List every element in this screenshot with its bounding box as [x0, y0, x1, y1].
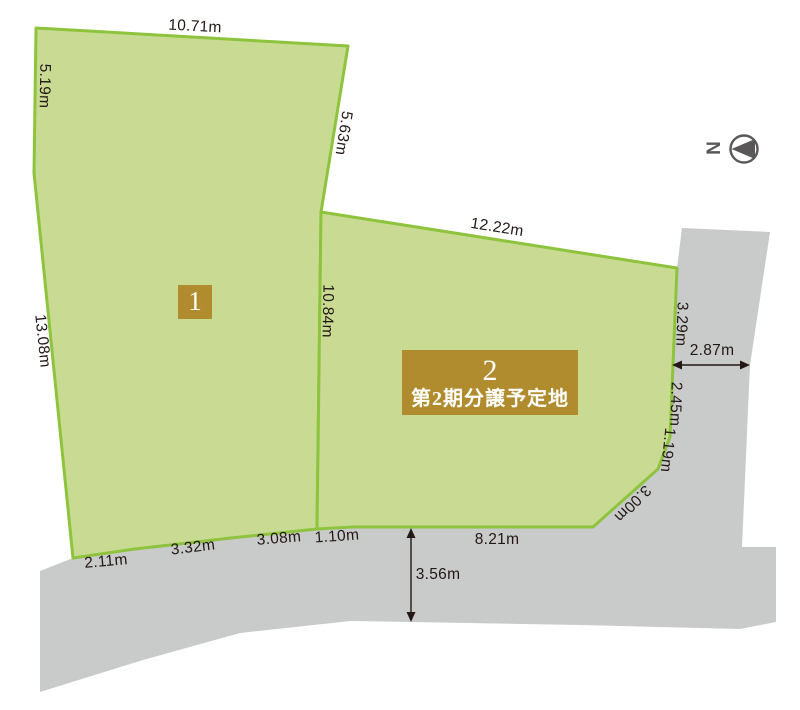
dim-bottom-1-10: 1.10m: [314, 526, 360, 547]
dim-road-right-width: 2.87m: [690, 342, 735, 360]
north-compass-icon: [731, 136, 758, 163]
dim-plot2-right-mid: 2.45m: [665, 381, 685, 426]
plot-1-badge: 1: [178, 285, 212, 319]
plot-2-badge: 2 第2期分譲予定地: [402, 350, 578, 415]
dim-plot2-bottom: 8.21m: [475, 531, 520, 549]
dim-bottom-2-11: 2.11m: [84, 551, 129, 573]
dim-plot1-top: 10.71m: [168, 17, 222, 38]
plot-plan-canvas: 10.71m 5.19m 13.08m 5.63m 12.22m 10.84m …: [0, 0, 800, 710]
dim-bottom-3-08: 3.08m: [256, 528, 302, 550]
plot-1-number: 1: [188, 287, 202, 317]
dim-divider: 10.84m: [318, 284, 337, 338]
plot-2-number: 2: [483, 355, 498, 387]
dim-plot2-right-upper: 3.29m: [671, 301, 691, 346]
plot-2-note: 第2期分譲予定地: [411, 388, 569, 410]
compass-north-label: N: [704, 141, 726, 155]
dim-plot1-left-upper: 5.19m: [35, 64, 54, 109]
dim-road-bottom-width: 3.56m: [416, 566, 461, 584]
plot-plan-drawing: [0, 0, 800, 710]
